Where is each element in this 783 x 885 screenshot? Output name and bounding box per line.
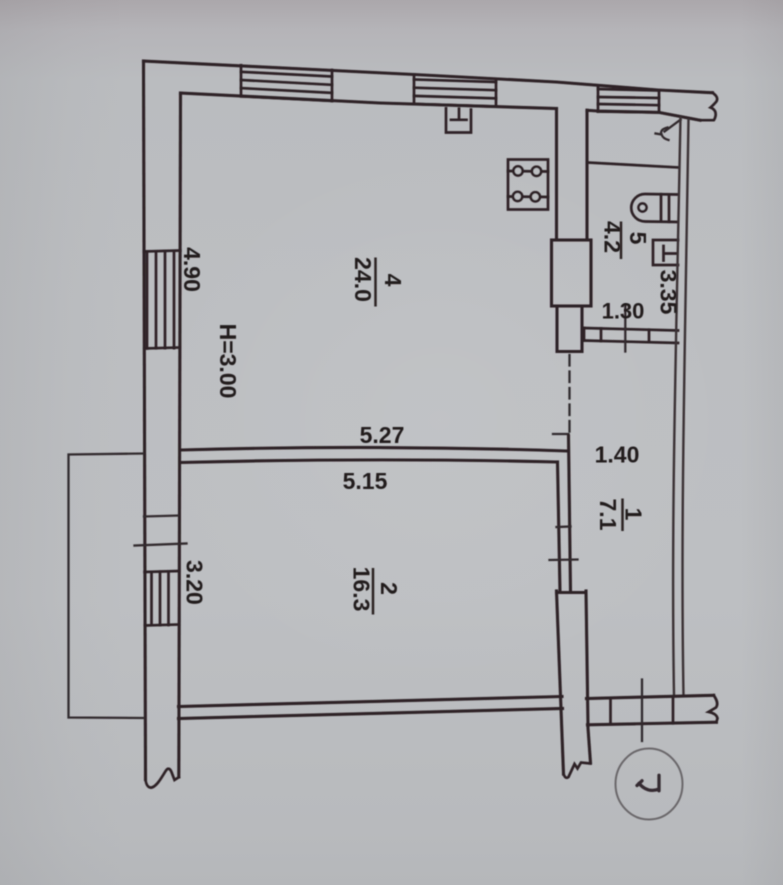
svg-text:16.3: 16.3 [349, 567, 375, 612]
svg-text:1: 1 [621, 508, 647, 521]
svg-text:1.40: 1.40 [595, 442, 640, 468]
svg-text:3.20: 3.20 [182, 560, 208, 605]
svg-text:5: 5 [625, 232, 651, 245]
svg-text:1.30: 1.30 [602, 299, 645, 324]
svg-text:2: 2 [376, 582, 402, 595]
svg-text:24.0: 24.0 [350, 257, 376, 302]
svg-text:4.90: 4.90 [179, 247, 205, 292]
svg-text:5.27: 5.27 [360, 422, 405, 448]
svg-text:4: 4 [380, 274, 406, 287]
svg-text:3.35: 3.35 [656, 270, 682, 315]
svg-text:H=3.00: H=3.00 [215, 324, 241, 399]
svg-text:5.15: 5.15 [343, 468, 388, 494]
svg-text:7.1: 7.1 [595, 499, 621, 531]
